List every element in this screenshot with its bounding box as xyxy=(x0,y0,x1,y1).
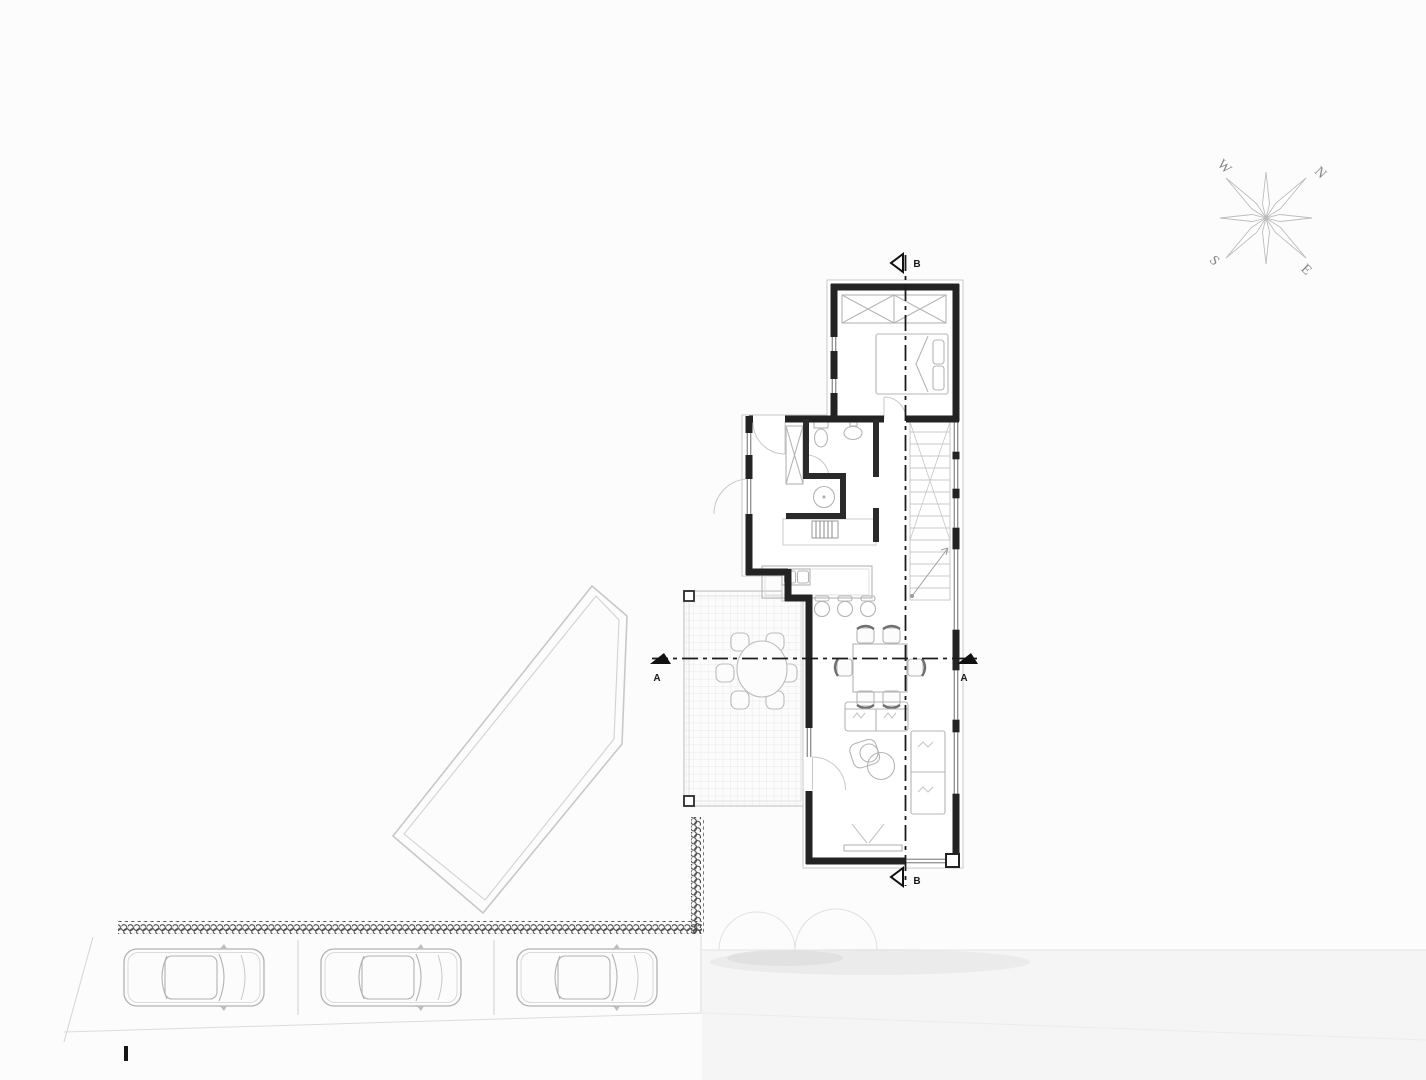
section-label-a-right: A xyxy=(960,673,967,684)
corner-post xyxy=(946,854,959,867)
road-area xyxy=(702,949,1426,1080)
fence-horizontal xyxy=(118,921,702,934)
paper-background xyxy=(0,0,1426,1080)
compass-star xyxy=(1220,172,1312,264)
terrace-table xyxy=(737,641,787,697)
section-label-b-bottom: B xyxy=(913,876,920,887)
terrace-post xyxy=(684,796,694,806)
terrace-post xyxy=(684,591,694,601)
site-plan-drawing: A A B B W N S E xyxy=(0,0,1426,1080)
site-plan-page: A A B B W N S E xyxy=(0,0,1426,1080)
terrace xyxy=(684,591,806,806)
section-label-a-left: A xyxy=(653,673,660,684)
section-label-b-top: B xyxy=(913,259,920,270)
survey-tick xyxy=(124,1046,128,1061)
fence-vertical xyxy=(691,817,704,934)
